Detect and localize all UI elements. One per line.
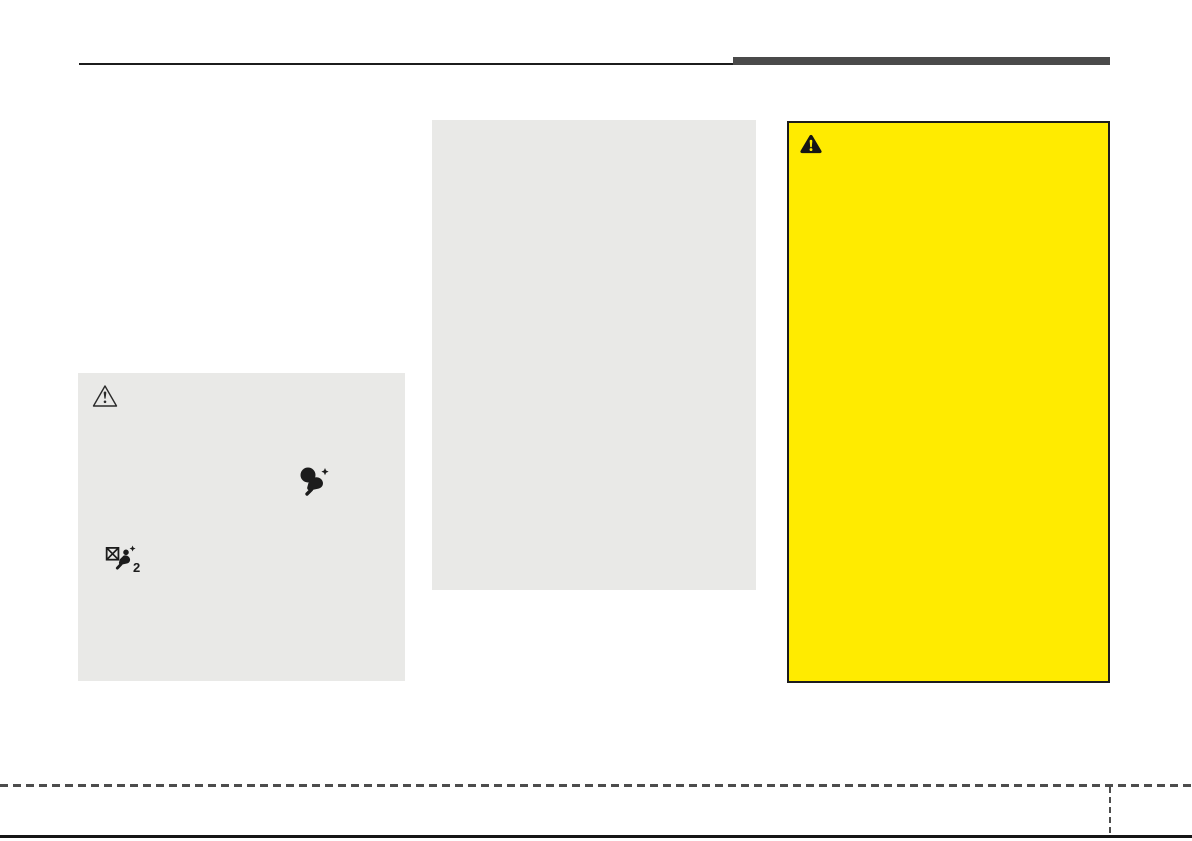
chapter-tab-bar <box>733 57 1110 65</box>
footer-dashed-line <box>0 784 1192 787</box>
page-bottom-rule <box>0 835 1192 838</box>
caution-triangle-icon <box>92 384 118 408</box>
header-rule <box>79 63 735 65</box>
footer-dashed-divider <box>1109 787 1111 835</box>
caution-note-box: 2 <box>78 373 405 681</box>
warning-box <box>787 121 1110 683</box>
content-placeholder-box <box>432 120 756 590</box>
airbag-deploy-icon <box>298 465 330 497</box>
warning-triangle-icon <box>800 134 822 154</box>
side-airbag-subscript: 2 <box>133 561 140 574</box>
manual-page: 2 <box>0 0 1192 841</box>
side-airbag-crossed-icon: 2 <box>105 545 149 579</box>
